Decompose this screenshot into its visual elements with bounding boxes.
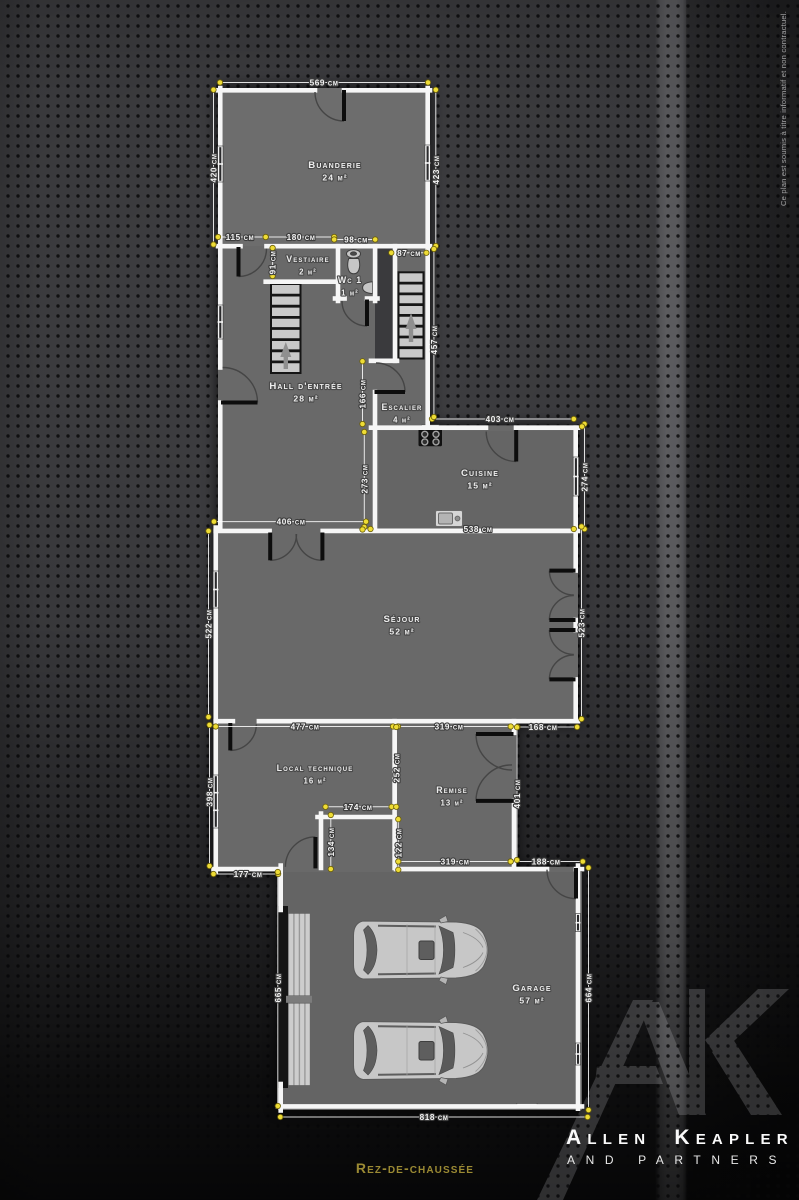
svg-text:Hall d'entrée: Hall d'entrée <box>269 381 342 392</box>
svg-text:522 cm: 522 cm <box>205 610 214 639</box>
svg-text:2 m²: 2 m² <box>299 268 317 277</box>
svg-text:252 cm: 252 cm <box>392 754 401 783</box>
svg-text:273 cm: 273 cm <box>360 465 369 494</box>
svg-text:16 m²: 16 m² <box>303 777 326 786</box>
svg-text:87 cm: 87 cm <box>397 249 421 258</box>
svg-text:177 cm: 177 cm <box>234 870 263 879</box>
svg-text:122 cm: 122 cm <box>394 829 403 858</box>
svg-text:180 cm: 180 cm <box>287 233 316 242</box>
svg-text:423 cm: 423 cm <box>432 156 441 185</box>
svg-text:538 cm: 538 cm <box>464 525 493 534</box>
svg-text:403 cm: 403 cm <box>486 415 515 424</box>
svg-text:401 cm: 401 cm <box>513 780 522 809</box>
svg-text:168 cm: 168 cm <box>529 723 558 732</box>
svg-text:15 m²: 15 m² <box>467 481 492 491</box>
svg-text:457 cm: 457 cm <box>430 326 439 355</box>
svg-text:174 cm: 174 cm <box>344 803 373 812</box>
svg-text:319 cm: 319 cm <box>441 858 470 867</box>
svg-text:166 cm: 166 cm <box>359 380 368 409</box>
svg-text:319 cm: 319 cm <box>435 723 464 732</box>
svg-text:188 cm: 188 cm <box>532 858 561 867</box>
svg-text:24 m²: 24 m² <box>322 173 347 183</box>
svg-text:13 m²: 13 m² <box>440 799 463 808</box>
svg-text:Escalier: Escalier <box>381 402 422 412</box>
svg-text:274 cm: 274 cm <box>581 463 590 492</box>
svg-text:Garage: Garage <box>512 983 551 994</box>
svg-text:406 cm: 406 cm <box>277 518 306 527</box>
svg-text:665 cm: 665 cm <box>274 974 283 1003</box>
svg-text:91 cm: 91 cm <box>269 251 278 275</box>
svg-text:Séjour: Séjour <box>383 614 420 625</box>
svg-text:1 m²: 1 m² <box>341 289 359 298</box>
svg-text:664 cm: 664 cm <box>585 974 594 1003</box>
svg-text:818 cm: 818 cm <box>420 1113 449 1122</box>
svg-text:52 m²: 52 m² <box>389 627 414 637</box>
svg-text:Local technique: Local technique <box>277 763 354 773</box>
svg-text:Vestiaire: Vestiaire <box>286 254 329 264</box>
svg-text:420 cm: 420 cm <box>210 154 219 183</box>
svg-text:398 cm: 398 cm <box>206 778 215 807</box>
svg-text:115 cm: 115 cm <box>226 233 254 242</box>
svg-text:28 m²: 28 m² <box>293 394 318 404</box>
svg-text:134 cm: 134 cm <box>327 828 336 857</box>
svg-text:569 cm: 569 cm <box>310 79 339 88</box>
svg-text:Remise: Remise <box>436 785 468 795</box>
svg-text:98 cm: 98 cm <box>344 236 368 245</box>
svg-text:4 m²: 4 m² <box>393 416 411 425</box>
svg-text:Wc 1: Wc 1 <box>338 275 362 285</box>
svg-text:477 cm: 477 cm <box>291 723 320 732</box>
svg-text:57 m²: 57 m² <box>519 996 544 1006</box>
svg-text:523 cm: 523 cm <box>578 609 587 638</box>
svg-text:Cuisine: Cuisine <box>461 468 499 479</box>
svg-text:Buanderie: Buanderie <box>308 160 361 171</box>
